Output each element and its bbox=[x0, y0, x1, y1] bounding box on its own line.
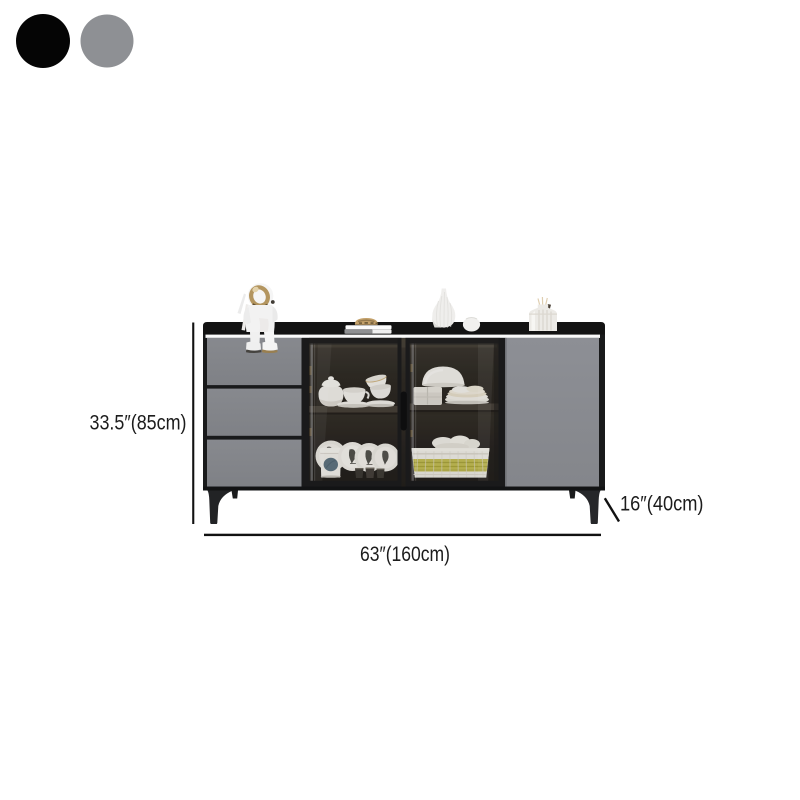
svg-text:16″(40cm): 16″(40cm) bbox=[620, 493, 704, 516]
svg-text:63″(160cm): 63″(160cm) bbox=[360, 543, 450, 566]
svg-text:33.5″(85cm): 33.5″(85cm) bbox=[90, 412, 187, 435]
